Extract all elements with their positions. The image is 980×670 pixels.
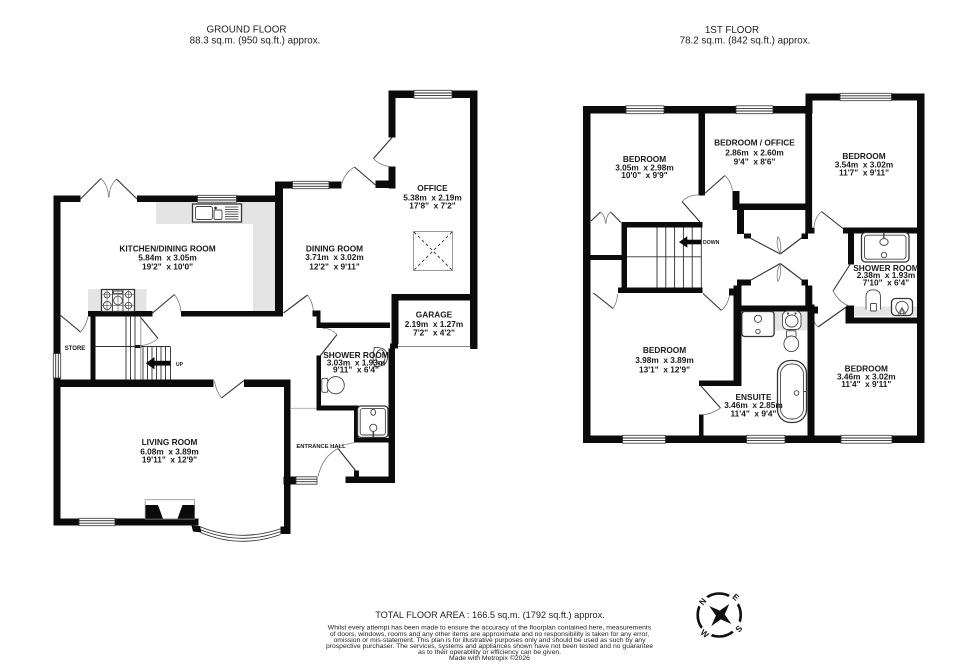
- svg-text:3.98m x 3.89m: 3.98m x 3.89m: [635, 355, 694, 365]
- svg-text:ENTRANCE HALL: ENTRANCE HALL: [296, 444, 346, 450]
- svg-text:GROUND FLOOR: GROUND FLOOR: [206, 25, 286, 36]
- svg-text:11'4" x 9'4": 11'4" x 9'4": [731, 409, 777, 419]
- svg-text:DOWN: DOWN: [703, 240, 720, 246]
- svg-text:1ST FLOOR: 1ST FLOOR: [705, 25, 759, 36]
- svg-text:BEDROOM / OFFICE: BEDROOM / OFFICE: [714, 138, 795, 148]
- svg-text:LIVING ROOM: LIVING ROOM: [142, 437, 198, 447]
- svg-text:11'7" x 9'11": 11'7" x 9'11": [839, 168, 889, 178]
- svg-text:17'8" x 7'2": 17'8" x 7'2": [409, 201, 455, 211]
- svg-text:OFFICE: OFFICE: [417, 183, 448, 193]
- svg-text:78.2 sq.m. (842 sq.ft.) approx: 78.2 sq.m. (842 sq.ft.) approx.: [680, 36, 811, 47]
- svg-text:88.3 sq.m. (950 sq.ft.) approx: 88.3 sq.m. (950 sq.ft.) approx.: [190, 36, 321, 47]
- svg-text:7'2" x 4'2": 7'2" x 4'2": [413, 327, 455, 337]
- svg-text:UP: UP: [176, 362, 184, 368]
- svg-text:STORE: STORE: [65, 346, 86, 352]
- svg-text:13'1" x 12'9": 13'1" x 12'9": [639, 365, 690, 375]
- svg-text:9'4" x 8'6": 9'4" x 8'6": [734, 157, 776, 167]
- svg-text:TOTAL FLOOR AREA : 166.5 sq.m.: TOTAL FLOOR AREA : 166.5 sq.m. (1792 sq.…: [375, 610, 605, 620]
- svg-text:BEDROOM: BEDROOM: [643, 345, 686, 355]
- svg-text:Made with Metropix ©2026: Made with Metropix ©2026: [449, 654, 530, 662]
- svg-text:7'10" x 6'4": 7'10" x 6'4": [863, 278, 909, 288]
- svg-text:19'2" x 10'0": 19'2" x 10'0": [142, 262, 193, 272]
- svg-text:9'11" x 6'4": 9'11" x 6'4": [333, 365, 379, 375]
- svg-text:11'4" x 9'11": 11'4" x 9'11": [841, 379, 891, 389]
- svg-text:12'2" x 9'11": 12'2" x 9'11": [309, 262, 360, 272]
- svg-text:10'0" x 9'9": 10'0" x 9'9": [621, 170, 667, 180]
- svg-text:19'11" x 12'9": 19'11" x 12'9": [142, 455, 197, 465]
